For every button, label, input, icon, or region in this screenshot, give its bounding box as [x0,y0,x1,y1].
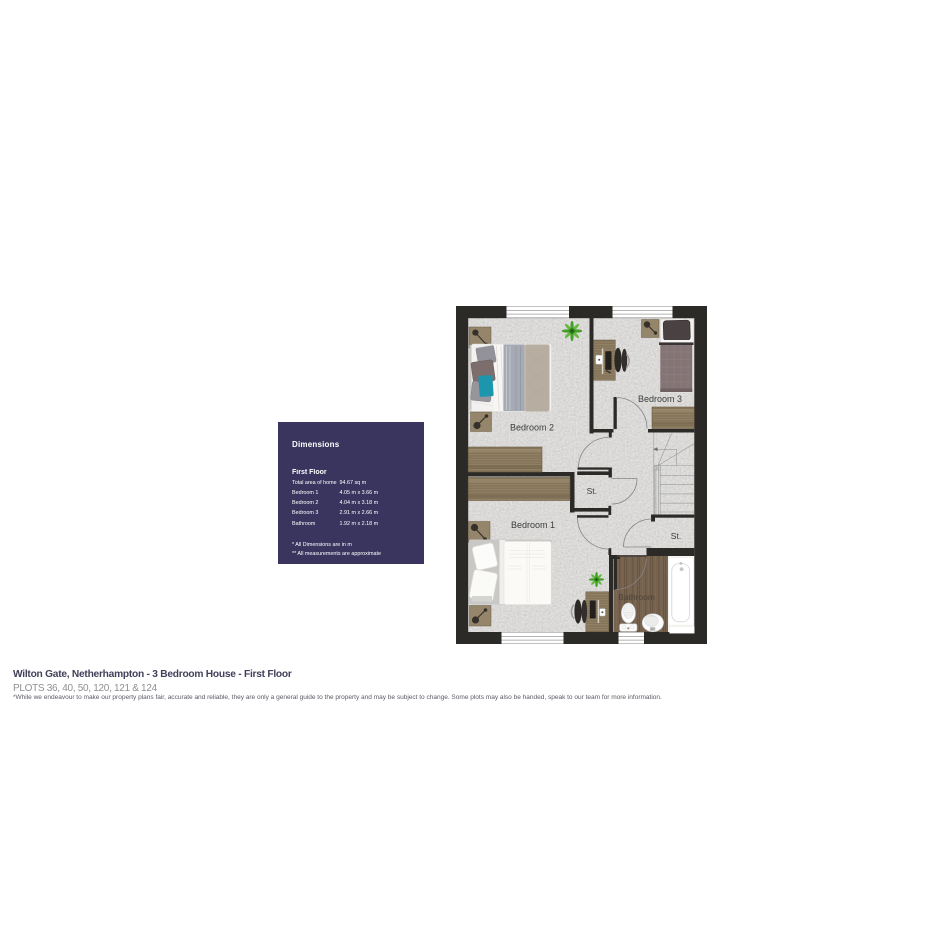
svg-text:Bedroom 3: Bedroom 3 [638,394,682,404]
svg-text:St.: St. [671,531,681,541]
svg-text:Bedroom 2: Bedroom 2 [510,423,554,433]
svg-text:St.: St. [587,486,597,496]
svg-text:Bedroom 1: Bedroom 1 [511,520,555,530]
svg-text:Bathroom: Bathroom [618,592,655,602]
